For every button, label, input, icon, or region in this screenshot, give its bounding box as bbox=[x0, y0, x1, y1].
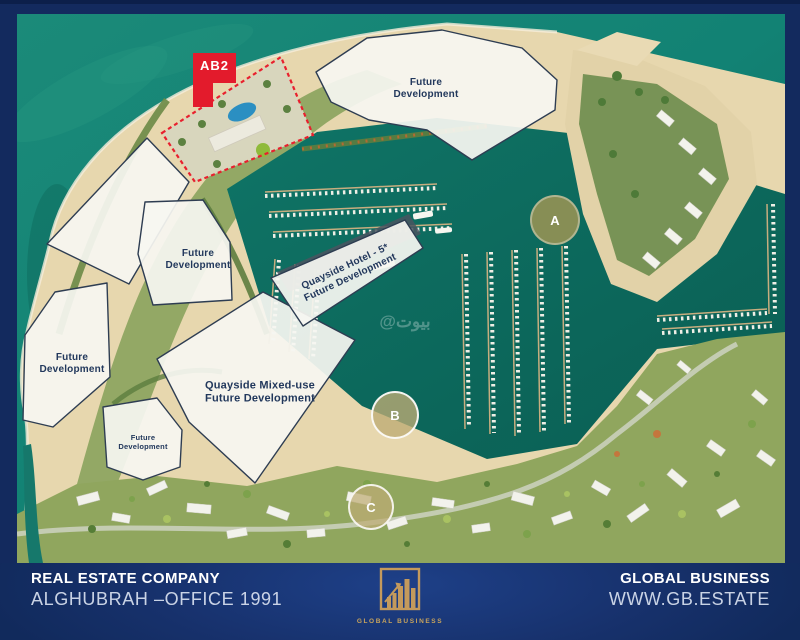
brand-website: WWW.GB.ESTATE bbox=[609, 589, 770, 610]
ab2-plot-label: AB2 bbox=[193, 58, 236, 73]
brand-logo: GLOBAL BUSINESS bbox=[340, 566, 460, 625]
buildings-logo-icon bbox=[377, 566, 423, 612]
frame-top-line bbox=[0, 0, 800, 4]
marker-b: B bbox=[371, 391, 419, 439]
logo-text: GLOBAL BUSINESS bbox=[340, 618, 460, 625]
company-block: REAL ESTATE COMPANY ALGHUBRAH –OFFICE 19… bbox=[31, 570, 282, 610]
site-map: AB2 Future Development Future Developmen… bbox=[17, 14, 785, 563]
brand-title: GLOBAL BUSINESS bbox=[609, 570, 770, 587]
footer-bar: REAL ESTATE COMPANY ALGHUBRAH –OFFICE 19… bbox=[0, 563, 800, 640]
watermark: @بيوت bbox=[379, 312, 430, 332]
flyer-frame: AB2 Future Development Future Developmen… bbox=[0, 0, 800, 640]
marker-a: A bbox=[530, 195, 580, 245]
terrain-svg bbox=[17, 14, 785, 563]
company-title: REAL ESTATE COMPANY bbox=[31, 570, 282, 587]
brand-block: GLOBAL BUSINESS WWW.GB.ESTATE bbox=[609, 570, 770, 610]
company-subtitle: ALGHUBRAH –OFFICE 1991 bbox=[31, 589, 282, 610]
marker-c: C bbox=[348, 484, 394, 530]
